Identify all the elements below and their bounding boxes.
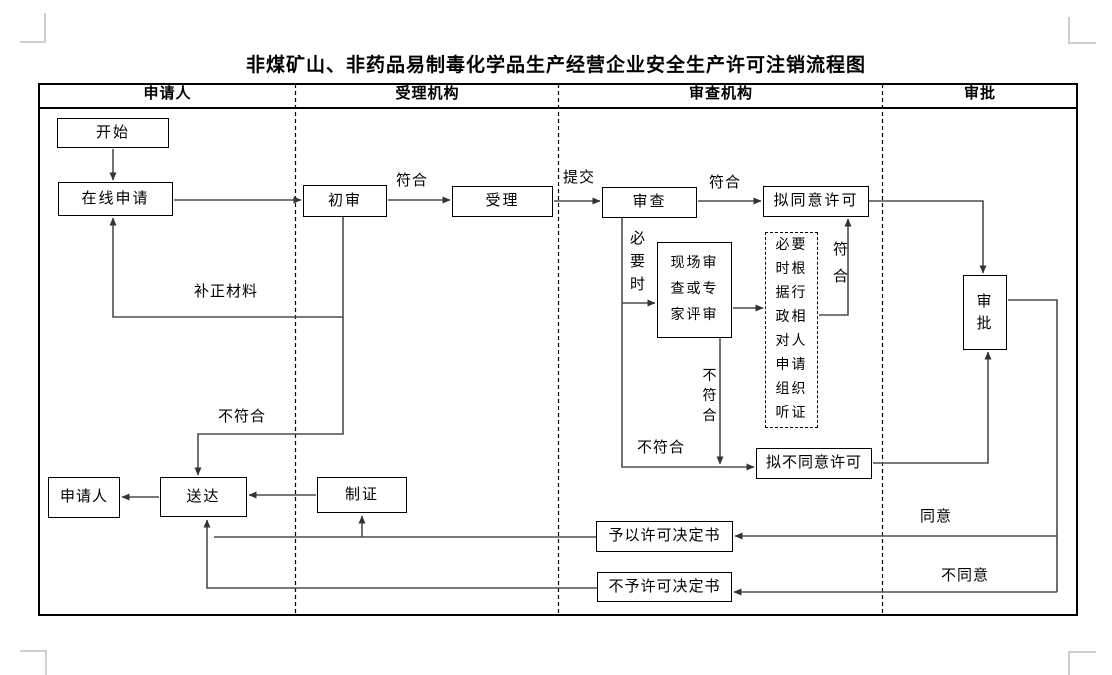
flow-node-propose-approve: 拟同意许可 — [763, 186, 869, 217]
edge-label-disagree: 不同意 — [941, 564, 989, 585]
flow-node-grant-decision: 予以许可决定书 — [596, 521, 733, 552]
flow-node-accept: 受理 — [452, 186, 553, 217]
lane-header-applicant: 申请人 — [40, 85, 295, 104]
edge-label-conform-1: 符合 — [396, 169, 428, 190]
edge-label-supplement-materials: 补正材料 — [194, 280, 258, 301]
flowchart-page: 非煤矿山、非药品易制毒化学品生产经营企业安全生产许可注销流程图 申请人 受理机构… — [0, 0, 1112, 675]
flowchart-border — [38, 83, 1078, 616]
flow-node-approval: 审批 — [963, 275, 1007, 350]
lane-header-approval: 审批 — [884, 85, 1076, 104]
flow-node-propose-deny: 拟不同意许可 — [756, 448, 872, 479]
edge-label-submit: 提交 — [563, 166, 595, 187]
edge-label-conform-3: 符合 — [832, 237, 849, 291]
flow-node-applicant: 申请人 — [48, 477, 120, 518]
lane-header-review-agency: 审查机构 — [560, 85, 882, 104]
flow-node-online-apply: 在线申请 — [58, 182, 173, 216]
flow-node-initial-review: 初审 — [303, 185, 387, 217]
page-title: 非煤矿山、非药品易制毒化学品生产经营企业安全生产许可注销流程图 — [0, 50, 1112, 77]
flow-node-make-cert: 制证 — [317, 477, 407, 513]
lane-header-accepting-agency: 受理机构 — [297, 85, 558, 104]
edge-label-not-conform-3: 不符合 — [637, 436, 685, 457]
flow-node-deliver: 送达 — [160, 477, 247, 517]
edge-label-agree: 同意 — [920, 505, 952, 526]
edge-label-conform-2: 符合 — [709, 171, 741, 192]
flow-node-review: 审查 — [602, 187, 697, 218]
edge-label-not-conform-1: 不符合 — [218, 405, 266, 426]
edge-label-when-necessary: 必要时 — [629, 228, 646, 297]
flow-node-site-review: 现场审查或专家评审 — [657, 242, 732, 338]
flow-node-hearing: 必要时根据行政相对人申请组织听证 — [765, 232, 818, 428]
flow-node-deny-decision: 不予许可决定书 — [597, 572, 732, 602]
flow-node-start: 开始 — [57, 118, 169, 148]
edge-label-not-conform-2: 不符合 — [701, 367, 718, 427]
